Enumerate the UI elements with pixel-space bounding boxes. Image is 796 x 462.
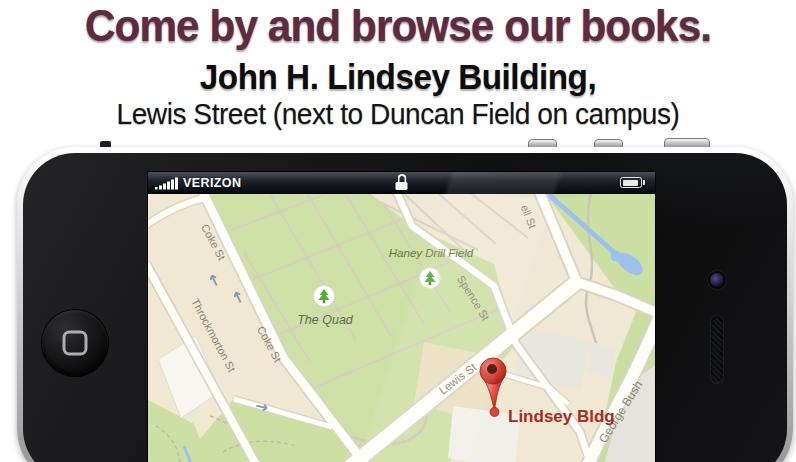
tree-icon [314, 286, 335, 307]
home-square-icon [63, 331, 88, 356]
iphone-body: VERIZON [23, 153, 787, 462]
flyer-canvas: Come by and browse our books. John H. Li… [0, 0, 796, 462]
home-button-icon [42, 310, 108, 376]
map-view: Coke St Coke St Throckmorton St Spence S… [148, 194, 655, 462]
phone-screen: VERIZON [148, 172, 655, 462]
signal-bars-icon [155, 176, 178, 190]
iphone-frame: VERIZON [17, 147, 793, 462]
marker-label-lindsey-bldg: Lindsey Bldg [508, 407, 615, 426]
tree-icon [420, 268, 441, 289]
lock-icon [394, 174, 409, 192]
area-label-the-quad: The Quad [297, 313, 354, 327]
headline-building: John H. Lindsey Building, [20, 57, 776, 97]
earpiece-speaker-icon [710, 315, 724, 383]
headline-main: Come by and browse our books. [24, 0, 772, 52]
carrier-label: VERIZON [183, 176, 241, 190]
campus-map: Coke St Coke St Throckmorton St Spence S… [148, 194, 655, 462]
status-bar: VERIZON [148, 172, 655, 194]
headline-address: Lewis Street (next to Duncan Field on ca… [12, 98, 784, 131]
front-camera-icon [710, 273, 724, 287]
area-label-haney-drill-field: Haney Drill Field [389, 247, 474, 259]
battery-icon [620, 177, 645, 188]
